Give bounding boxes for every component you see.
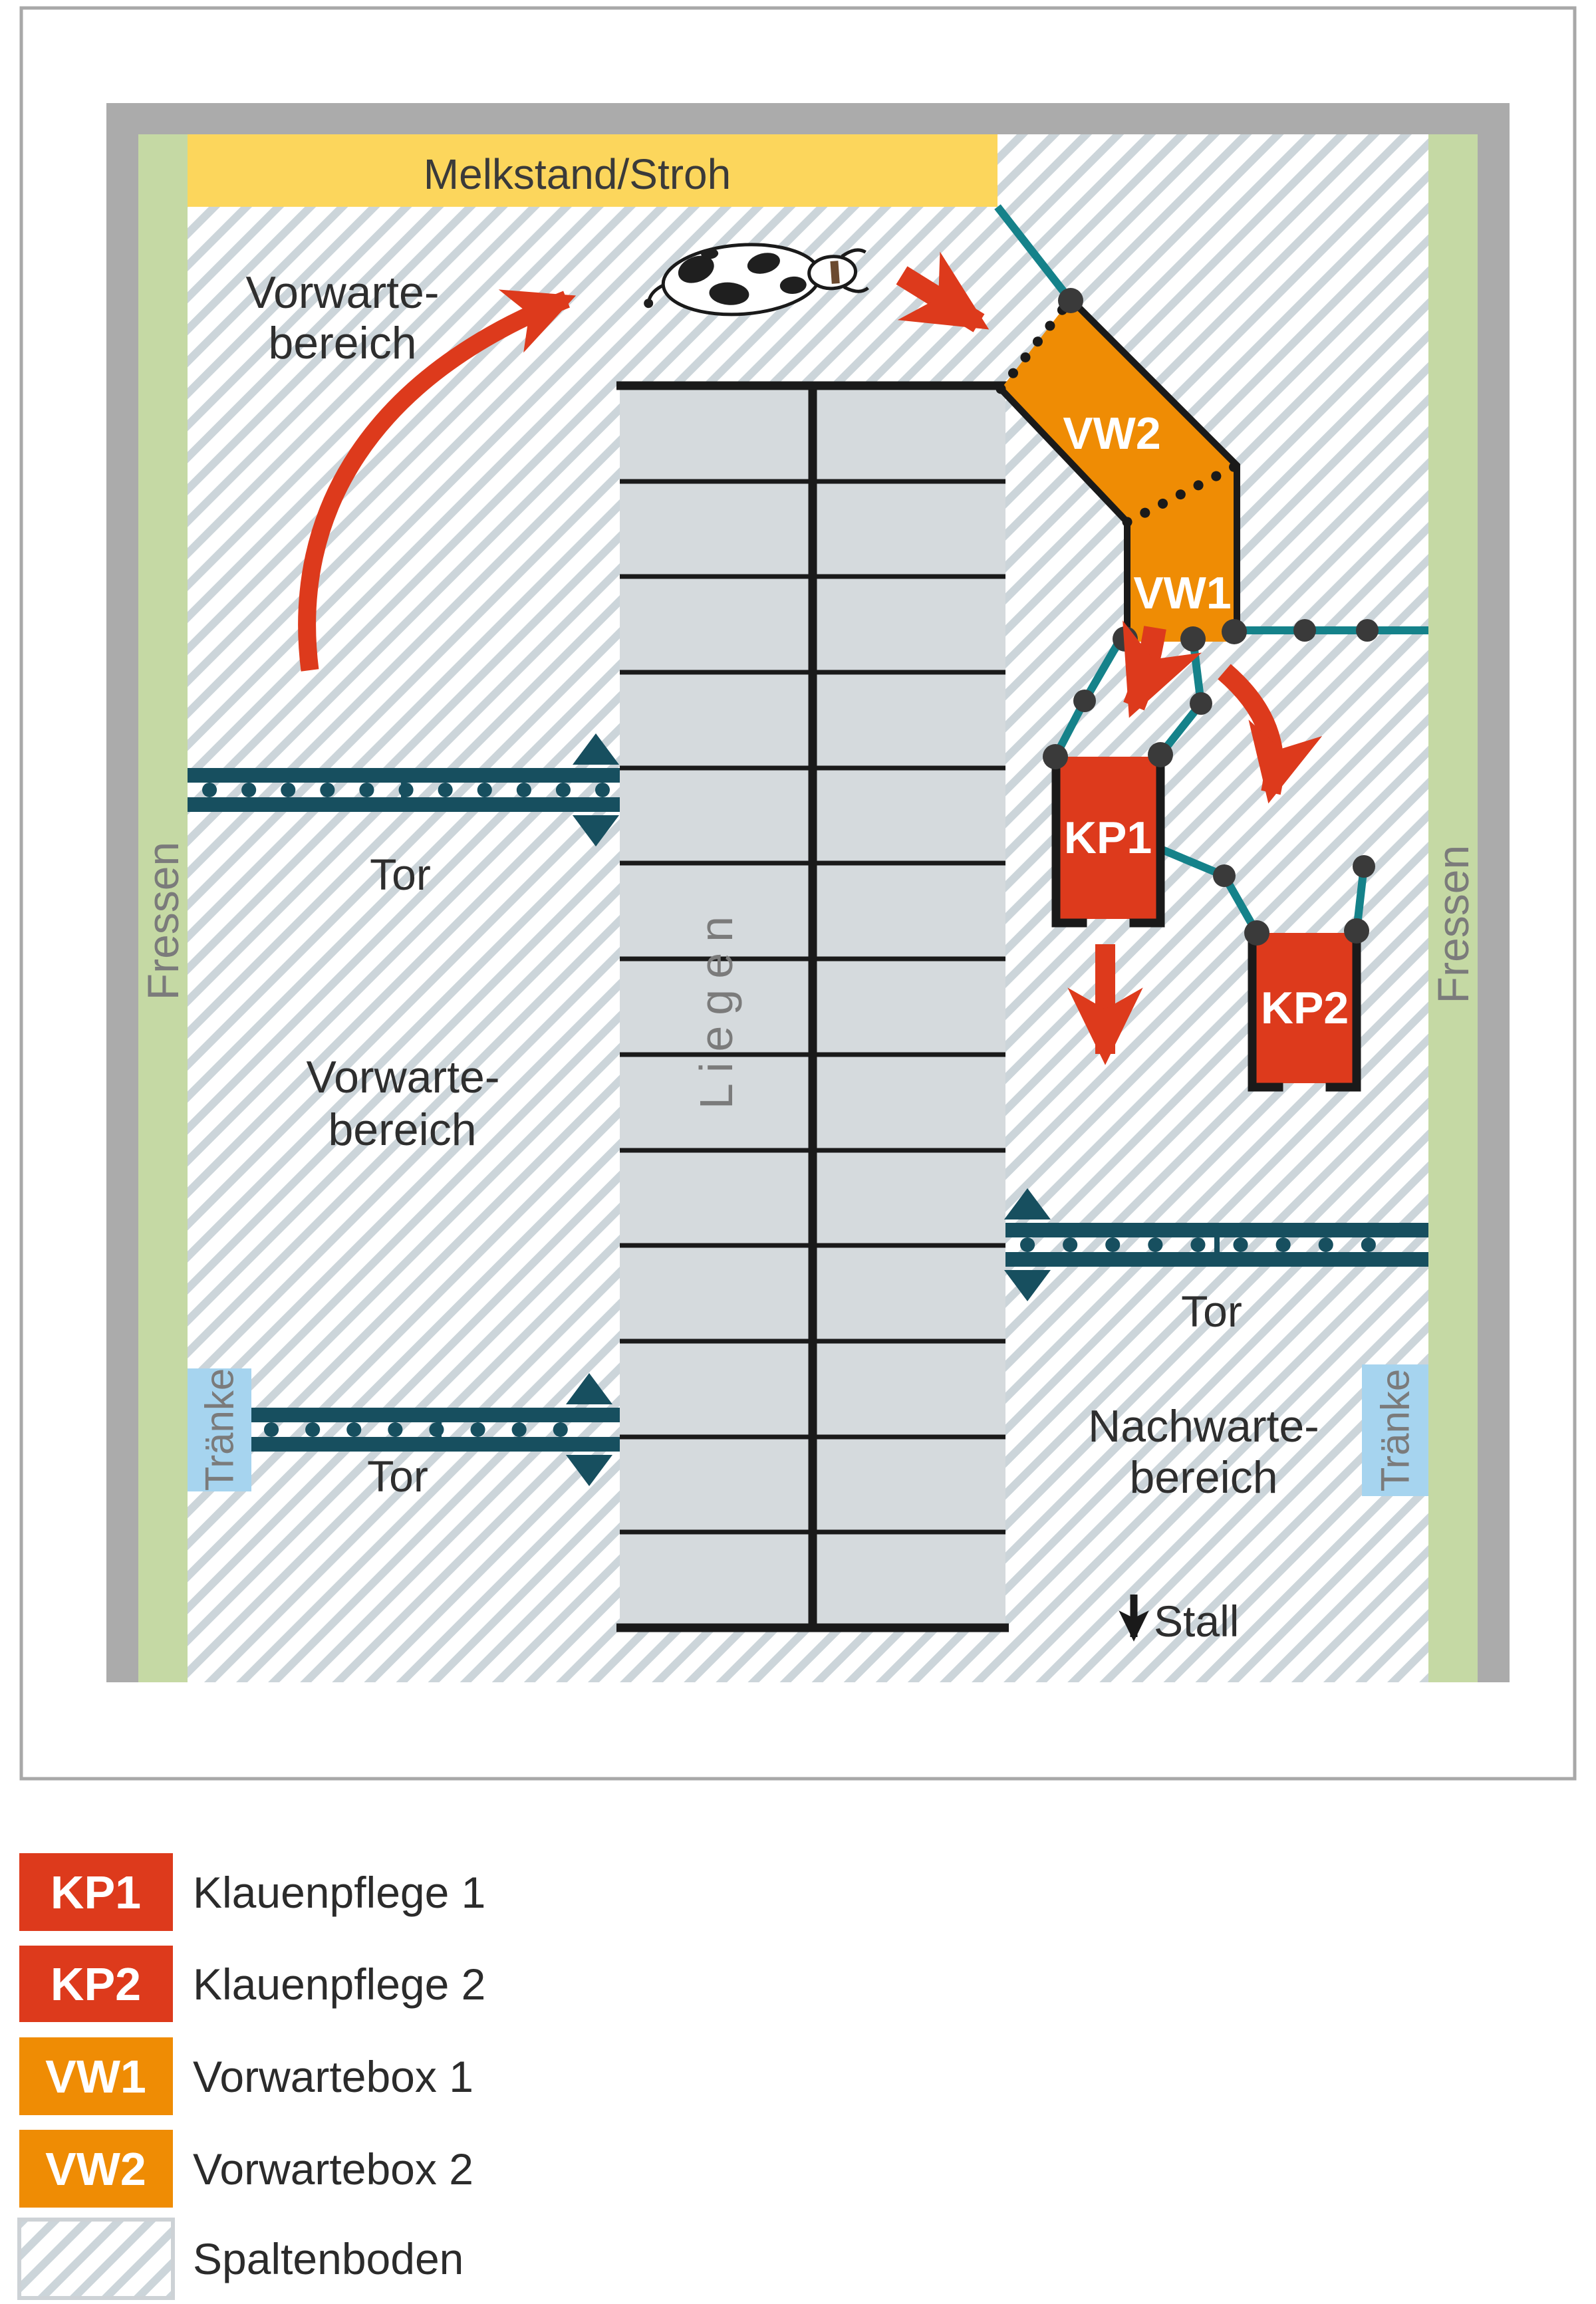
joint-dot (1113, 626, 1138, 652)
legend-item-spaltenboden: Spaltenboden (19, 2220, 464, 2298)
joint-dot (1043, 744, 1068, 769)
tor-lower-left-label: Tor (367, 1452, 428, 1501)
joint-dot (1213, 864, 1236, 887)
legend-key: VW2 (45, 2143, 146, 2195)
nachwarte-line1: Nachwarte- (1088, 1401, 1319, 1452)
stall-label: Stall (1154, 1597, 1239, 1646)
joint-dot (1073, 690, 1096, 712)
legend-key: KP2 (51, 1958, 141, 2010)
legend-label: Vorwartebox 1 (193, 2052, 473, 2101)
joint-dot (1222, 619, 1247, 644)
legend-item-kp1: KP1 Klauenpflege 1 (19, 1853, 485, 1931)
vorwarte-top-line2: bereich (268, 318, 416, 368)
nachwarte-line2: bereich (1129, 1452, 1277, 1503)
legend-item-kp2: KP2 Klauenpflege 2 (19, 1946, 485, 2022)
wall-right (1478, 103, 1510, 1682)
fressen-left-label: Fressen (138, 842, 188, 1000)
legend: KP1 Klauenpflege 1 KP2 Klauenpflege 2 VW… (19, 1853, 485, 2298)
legend-swatch-hatch (19, 2220, 173, 2298)
vorwarte-top-line1: Vorwarte- (246, 267, 440, 318)
tor-upper-left-label: Tor (370, 850, 431, 899)
gate-bar (251, 1437, 620, 1452)
liegen-label: Liegen (690, 906, 742, 1109)
joint-dot (1353, 855, 1375, 878)
legend-label: Spaltenboden (193, 2234, 464, 2283)
joint-dot (1344, 918, 1369, 944)
vw2-box-label: VW2 (1063, 408, 1160, 459)
legend-item-vw2: VW2 Vorwartebox 2 (19, 2130, 473, 2208)
wall-left (106, 103, 138, 1682)
kp2-box-label: KP2 (1261, 983, 1349, 1033)
melkstand-label: Melkstand/Stroh (424, 150, 731, 198)
joint-dot (1190, 692, 1212, 715)
traenke-left-label: Tränke (198, 1368, 242, 1491)
joint-dot (1356, 619, 1379, 642)
cow-halter (830, 261, 839, 284)
barn-diagram: Melkstand/Stroh Vorwarte- bereich Vorwar… (0, 0, 1596, 2304)
tor-right-label: Tor (1181, 1287, 1242, 1336)
legend-item-vw1: VW1 Vorwartebox 1 (19, 2037, 473, 2115)
joint-dot (1293, 619, 1316, 642)
gate-bar (251, 1408, 620, 1422)
joint-dot (1058, 288, 1083, 313)
wall-top (106, 103, 1510, 134)
kp1-box-label: KP1 (1064, 813, 1152, 863)
joint-dot (1180, 626, 1206, 652)
fressen-right-label: Fressen (1428, 845, 1478, 1003)
vorwarte-left-line2: bereich (328, 1104, 476, 1155)
joint-dot (1148, 742, 1173, 767)
legend-label: Klauenpflege 2 (193, 1960, 485, 2009)
legend-label: Vorwartebox 2 (193, 2144, 473, 2194)
liegen-table (616, 386, 1009, 1628)
vorwarte-left-line1: Vorwarte- (307, 1052, 500, 1102)
legend-label: Klauenpflege 1 (193, 1868, 485, 1917)
vw1-box-label: VW1 (1133, 568, 1231, 618)
traenke-right-label: Tränke (1373, 1369, 1418, 1492)
legend-key: VW1 (45, 2051, 146, 2103)
legend-key: KP1 (51, 1866, 141, 1918)
joint-dot (1244, 920, 1269, 946)
